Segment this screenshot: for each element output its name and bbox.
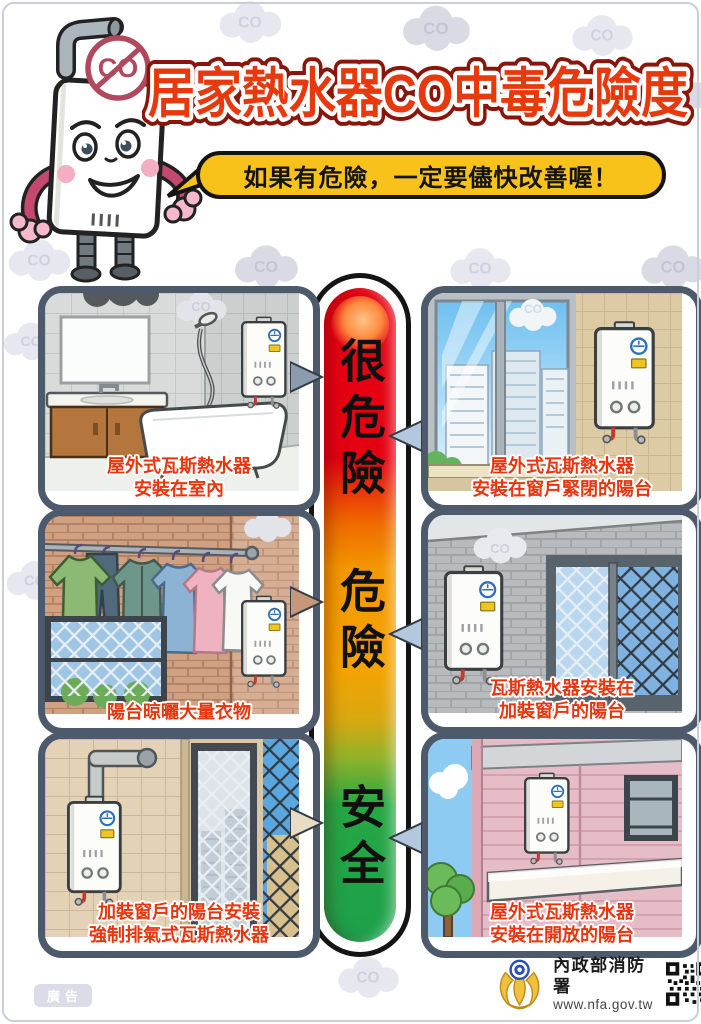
svg-text:CO: CO <box>238 14 261 31</box>
panel-heater-indoors: CO 屋外式瓦斯熱水器安裝在室內 <box>38 286 320 512</box>
agency-name: 內政部消防署 <box>553 956 658 997</box>
speech-bubble-text: 如果有危險，一定要儘快改善喔！ <box>244 158 619 193</box>
panel2-caption: 屋外式瓦斯熱水器安裝在窗戶緊閉的陽台 <box>428 455 696 501</box>
panel3-caption: 陽台晾曬大量衣物 <box>45 701 313 724</box>
agency-website: www.nfa.gov.tw <box>553 997 658 1012</box>
co-cloud: CO <box>334 952 404 999</box>
co-cloud: CO <box>230 240 304 289</box>
panel6-caption: 屋外式瓦斯熱水器安裝在開放的陽台 <box>428 901 696 947</box>
panel-heater-open-balcony: 屋外式瓦斯熱水器安裝在開放的陽台 <box>421 732 701 958</box>
pointer-panel5 <box>290 806 324 840</box>
footer-text: 內政部消防署 www.nfa.gov.tw <box>553 956 658 1012</box>
poster: CO CO CO CO CO CO CO CO CO CO CO CO CO C… <box>0 0 701 1024</box>
svg-text:CO: CO <box>191 299 211 314</box>
ad-label: 廣告 <box>34 984 92 1007</box>
panel-laundry-balcony: 陽台晾曬大量衣物 <box>38 509 320 735</box>
svg-text:居家熱水器CO中毒危險度: 居家熱水器CO中毒危險度 <box>148 64 688 124</box>
footer: 內政部消防署 www.nfa.gov.tw <box>494 956 701 1012</box>
svg-text:CO: CO <box>490 541 510 556</box>
svg-text:CO: CO <box>524 302 542 316</box>
fire-agency-badge-icon <box>494 956 545 1012</box>
pointer-panel6 <box>388 821 422 855</box>
panel1-caption: 屋外式瓦斯熱水器安裝在室內 <box>45 455 313 501</box>
panel5-caption: 加裝窗戶的陽台安裝強制排氣式瓦斯熱水器 <box>45 901 313 947</box>
scale-label-very-dangerous: 很危險 <box>337 337 383 505</box>
qr-code <box>666 961 701 1007</box>
panel-heater-closed-balcony: CO 屋外式瓦斯熱水器安裝在窗戶緊閉的陽台 <box>421 286 701 512</box>
panel-forced-exhaust-heater: 加裝窗戶的陽台安裝強制排氣式瓦斯熱水器 <box>38 732 320 958</box>
panel4-caption: 瓦斯熱水器安裝在加裝窗戶的陽台 <box>428 677 696 723</box>
no-co-badge: CO <box>88 38 148 98</box>
speech-bubble: 如果有危險，一定要儘快改善喔！ <box>196 151 666 199</box>
scale-label-dangerous: 危險 <box>337 567 383 679</box>
svg-text:CO: CO <box>661 259 685 277</box>
svg-text:CO: CO <box>468 261 491 278</box>
page-title: 居家熱水器CO中毒危險度 居家熱水器CO中毒危險度 <box>142 36 694 148</box>
panel-heater-added-window-balcony: CO 瓦斯熱水器安裝在加裝窗戶的陽台 <box>421 508 701 734</box>
pointer-panel4 <box>388 617 422 651</box>
pointer-panel2 <box>388 419 422 453</box>
pointer-panel1 <box>290 360 324 394</box>
scene-laundry <box>45 516 299 714</box>
svg-text:CO: CO <box>356 970 379 987</box>
svg-text:CO: CO <box>254 259 278 276</box>
co-cloud: CO <box>636 240 701 290</box>
pointer-panel3 <box>290 585 324 619</box>
scale-label-safe: 安全 <box>337 783 383 895</box>
co-cloud: CO <box>446 243 516 290</box>
